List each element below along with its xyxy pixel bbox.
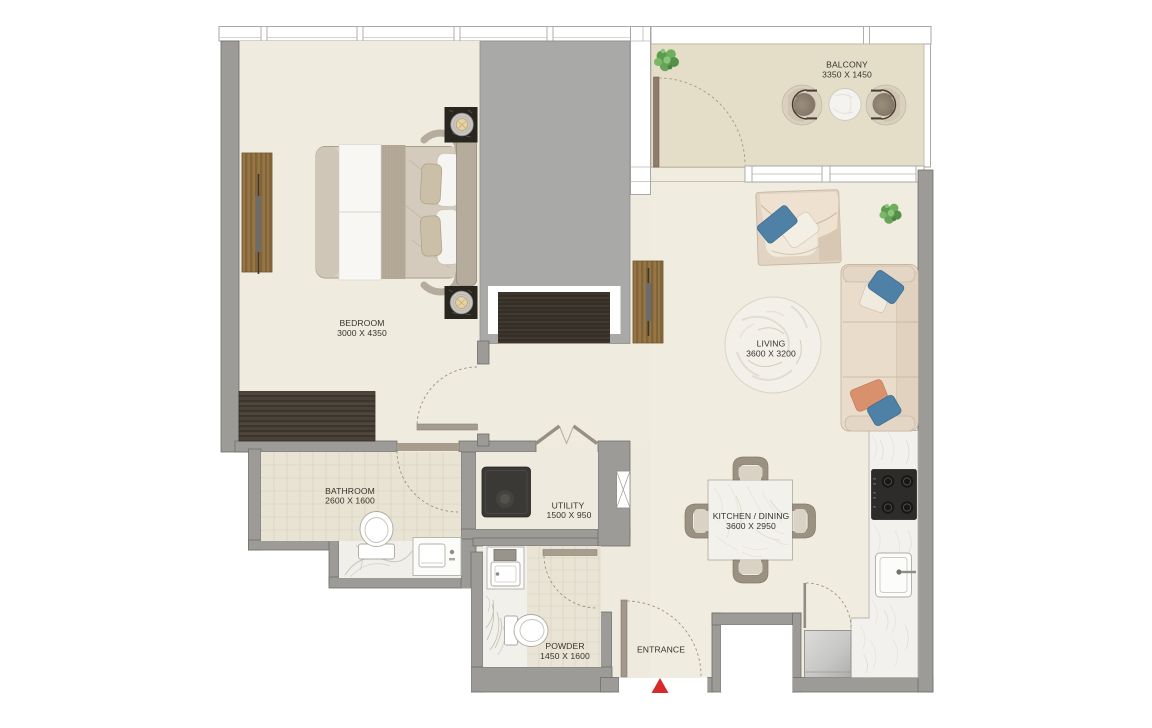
svg-text:UTILITY: UTILITY [552, 501, 585, 511]
svg-text:BATHROOM: BATHROOM [325, 486, 375, 496]
svg-text:ENTRANCE: ENTRANCE [637, 645, 685, 655]
svg-text:3350 X 1450: 3350 X 1450 [822, 70, 872, 80]
svg-text:2600 X 1600: 2600 X 1600 [325, 496, 375, 506]
svg-text:3000 X 4350: 3000 X 4350 [337, 328, 387, 338]
svg-text:1450 X 1600: 1450 X 1600 [540, 651, 590, 661]
svg-text:BEDROOM: BEDROOM [339, 318, 384, 328]
svg-text:LIVING: LIVING [757, 339, 786, 349]
svg-text:KITCHEN / DINING: KITCHEN / DINING [713, 511, 790, 521]
svg-text:3600 X 3200: 3600 X 3200 [746, 349, 796, 359]
svg-text:POWDER: POWDER [545, 641, 584, 651]
svg-text:1500 X 950: 1500 X 950 [547, 510, 592, 520]
svg-text:BALCONY: BALCONY [826, 60, 868, 70]
svg-text:3600 X 2950: 3600 X 2950 [726, 521, 776, 531]
